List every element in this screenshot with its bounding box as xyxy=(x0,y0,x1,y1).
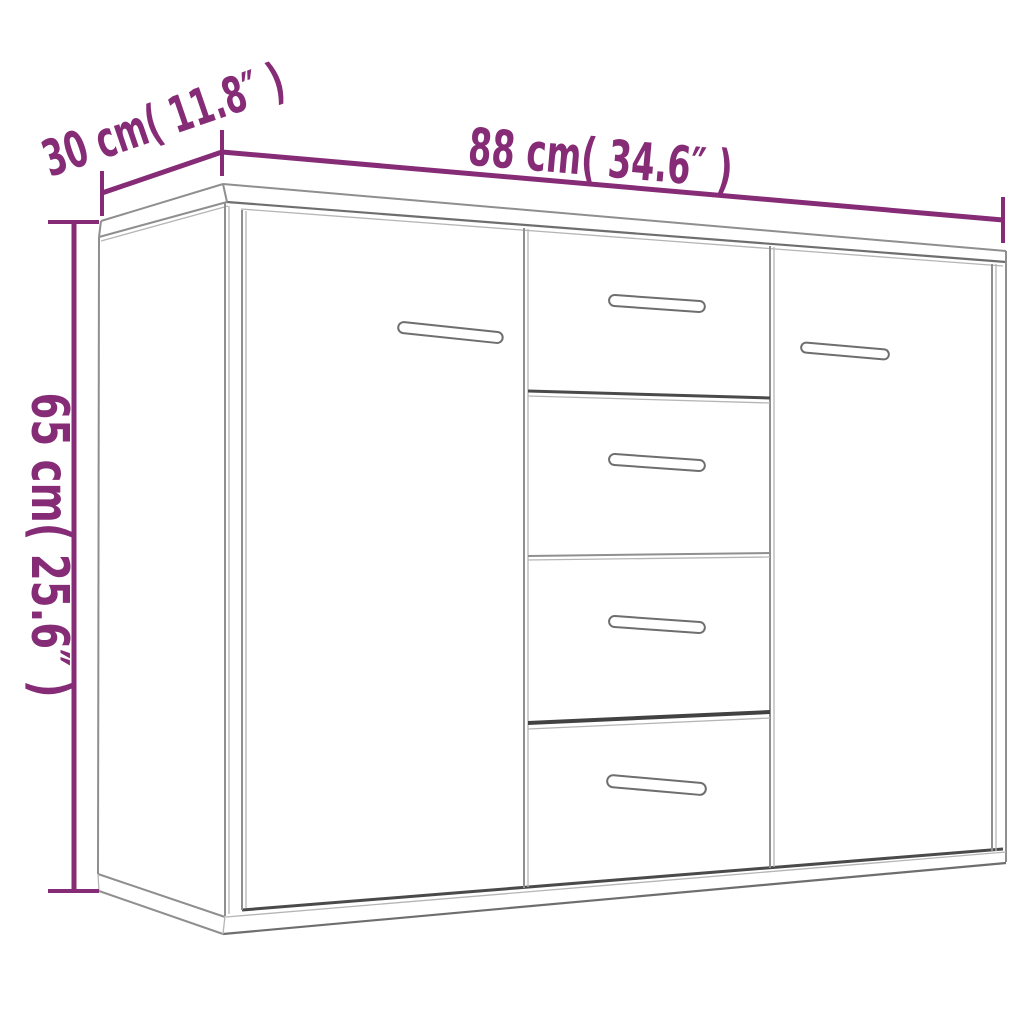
left-plinth-edge xyxy=(99,891,223,934)
cabinet-drawing xyxy=(98,184,1006,934)
height-dimension: 65 cm( 25.6″ ) xyxy=(19,222,99,891)
drawer-3-handle xyxy=(609,616,706,634)
top-panel-left-seam xyxy=(101,206,228,241)
top-panel-back-edge xyxy=(223,184,1006,251)
left-panel-bottom-edge xyxy=(98,874,225,917)
plinth-bottom-edge xyxy=(223,863,1006,934)
width-dimension-label: 88 cm( 34.6″ ) xyxy=(466,118,735,201)
plinth-top-edge xyxy=(226,852,1006,917)
drawer-separator-2 xyxy=(528,553,770,556)
dimension-annotations: 88 cm( 34.6″ ) 30 cm( 11.8″ ) 65 cm( 25.… xyxy=(19,51,1003,891)
right-door xyxy=(801,264,996,851)
plinth-left-corner xyxy=(223,916,225,934)
top-panel-corner-edge xyxy=(223,184,227,202)
height-dimension-label: 65 cm( 25.6″ ) xyxy=(19,393,79,698)
depth-dimension: 30 cm( 11.8″ ) xyxy=(35,51,292,216)
drawer-separator-3 xyxy=(528,712,770,723)
right-door-handle xyxy=(801,342,890,360)
drawer-2-handle xyxy=(609,454,706,472)
top-panel xyxy=(99,184,1006,266)
left-plinth-corner xyxy=(98,874,99,891)
depth-dimension-label: 30 cm( 11.8″ ) xyxy=(35,51,292,188)
drawer-column xyxy=(524,228,774,888)
drawer-1-handle xyxy=(609,295,706,313)
carcass-frame xyxy=(223,203,1006,934)
top-panel-front-left-edge xyxy=(99,221,101,237)
left-panel-outer-edge xyxy=(98,237,99,874)
left-door-handle xyxy=(398,322,504,344)
drawer-separator-2-seam xyxy=(528,557,770,560)
left-door xyxy=(242,210,503,910)
width-dimension: 88 cm( 34.6″ ) xyxy=(222,118,1003,243)
drawer-4-handle xyxy=(607,775,707,796)
left-side-panel xyxy=(98,237,225,934)
front-bottom-edge xyxy=(242,849,1003,910)
furniture-dimension-diagram: 88 cm( 34.6″ ) 30 cm( 11.8″ ) 65 cm( 25.… xyxy=(0,0,1024,1024)
top-panel-left-bottom xyxy=(99,202,227,237)
